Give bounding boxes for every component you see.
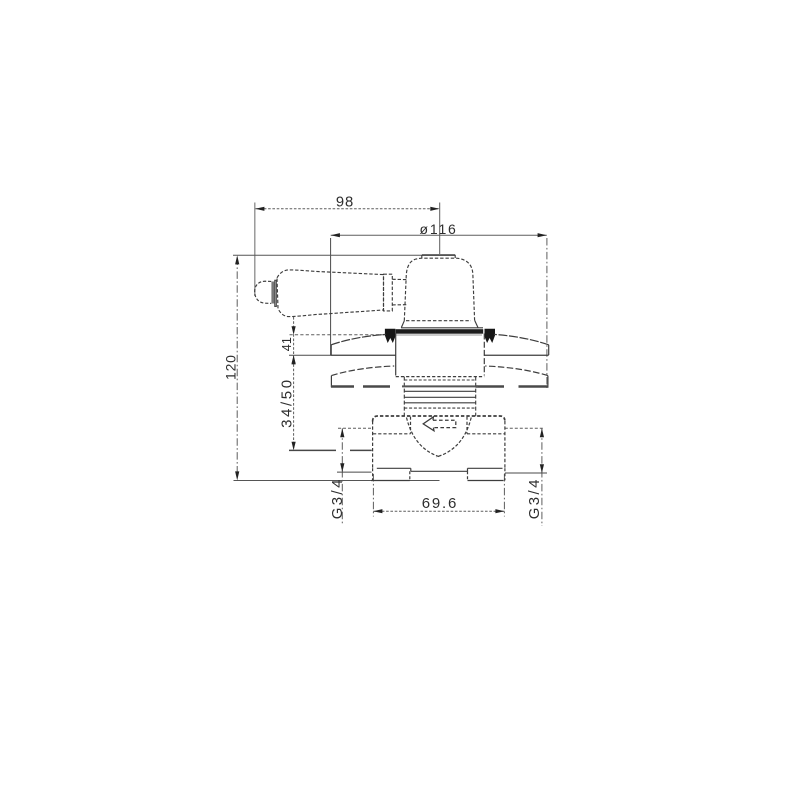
- svg-text:69.6: 69.6: [422, 495, 458, 512]
- svg-text:ø116: ø116: [420, 221, 458, 237]
- svg-text:41: 41: [280, 337, 294, 351]
- svg-text:G3/4: G3/4: [329, 477, 346, 519]
- svg-text:34/50: 34/50: [279, 377, 296, 428]
- svg-text:98: 98: [336, 194, 354, 210]
- svg-text:G3/4: G3/4: [526, 477, 543, 519]
- svg-text:120: 120: [222, 354, 238, 380]
